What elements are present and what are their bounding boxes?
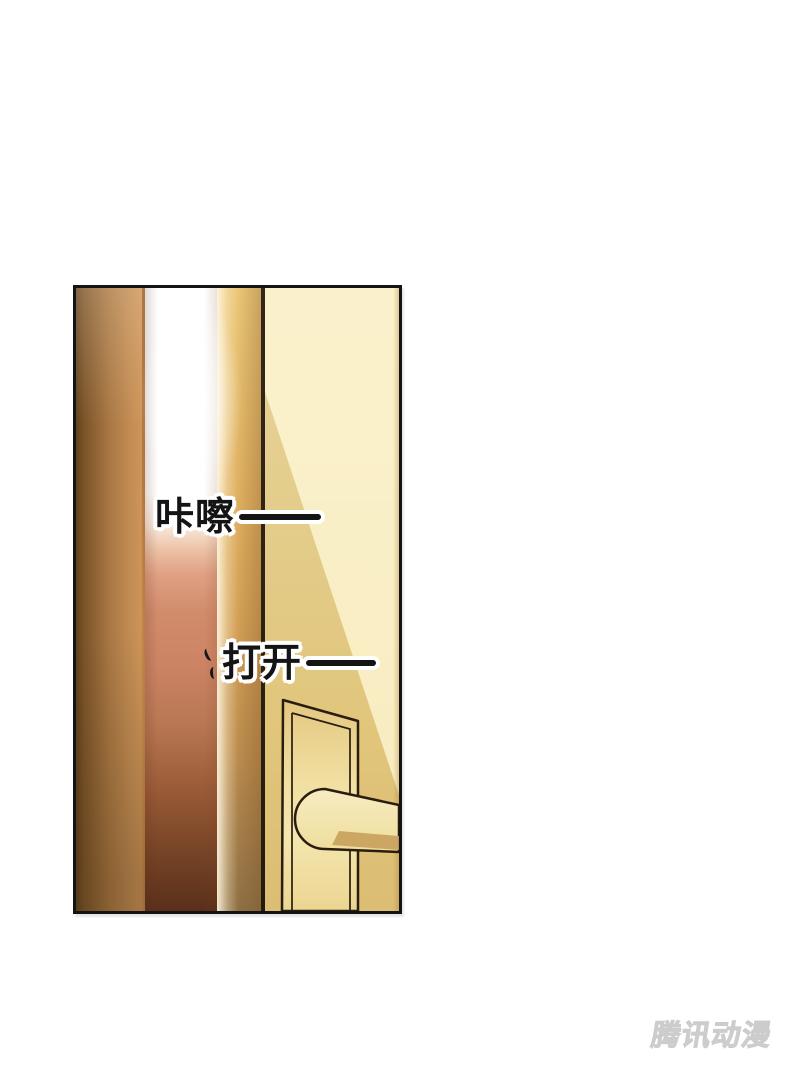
long-dash: [239, 514, 321, 520]
sfx-click-bubble: 咔嚓: [155, 496, 321, 538]
emphasis-marks: [203, 648, 219, 684]
sfx-click-text: 咔嚓: [155, 498, 235, 537]
page-background: 咔嚓 打开 腾讯动漫: [0, 0, 800, 1069]
sfx-open-bubble: 打开: [222, 642, 376, 684]
emphasis-mark-icon: [203, 647, 216, 662]
watermark-tencent-comics: 腾讯动漫: [649, 1012, 776, 1054]
door-handle: [295, 789, 399, 852]
comic-panel: 咔嚓 打开: [73, 285, 402, 914]
emphasis-mark-icon: [210, 667, 219, 680]
sfx-open-text: 打开: [222, 644, 302, 683]
door-hardware: [76, 288, 399, 911]
long-dash: [306, 660, 376, 666]
